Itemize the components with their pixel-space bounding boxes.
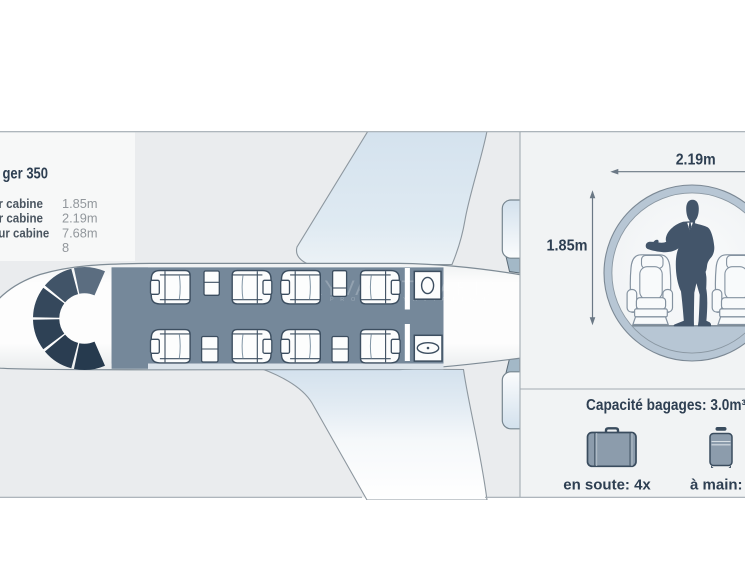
svg-text:en soute: 4x: en soute: 4x	[563, 477, 651, 494]
svg-text:Longueur cabine: Longueur cabine	[0, 225, 49, 240]
svg-text:Hauteur cabine: Hauteur cabine	[0, 196, 43, 211]
svg-text:Capacité bagages: 3.0m³: Capacité bagages: 3.0m³	[586, 397, 745, 414]
svg-text:2.19m: 2.19m	[62, 211, 98, 226]
svg-text:1.85m: 1.85m	[62, 196, 98, 211]
svg-text:Largeur cabine: Largeur cabine	[0, 211, 43, 226]
svg-text:ger 350: ger 350	[3, 166, 49, 183]
svg-text:à main: 4x: à main: 4x	[690, 477, 745, 494]
svg-text:1.85m: 1.85m	[547, 238, 588, 255]
svg-text:8: 8	[62, 240, 69, 255]
svg-text:7.68m: 7.68m	[62, 225, 98, 240]
svg-text:2.19m: 2.19m	[676, 152, 716, 169]
